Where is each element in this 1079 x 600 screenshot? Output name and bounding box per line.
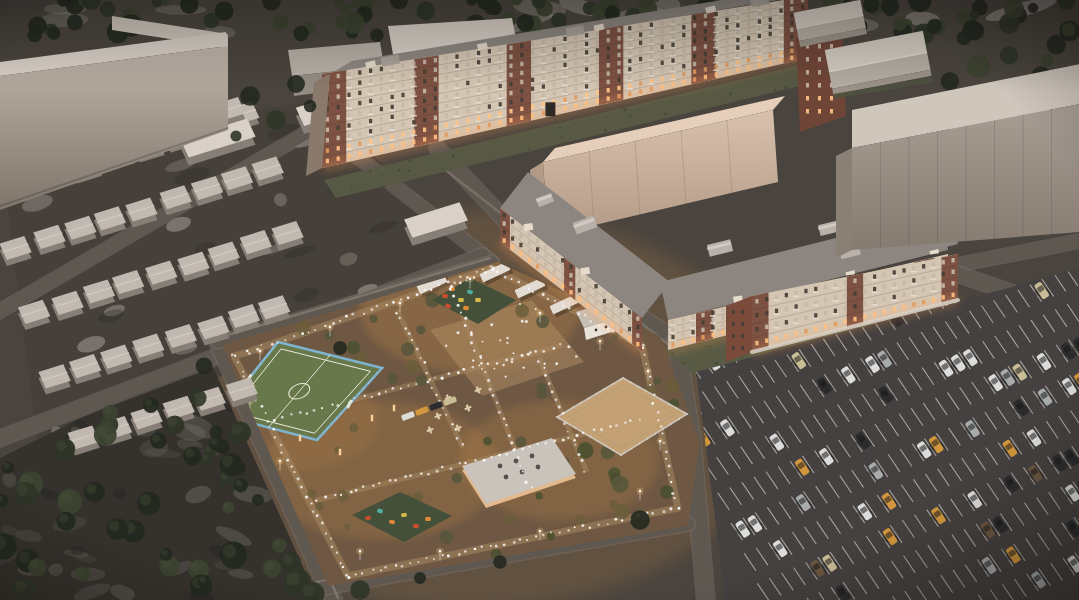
- scene-svg: [0, 0, 1079, 600]
- vignette-overlay: [0, 0, 1079, 600]
- aerial-render-viewport: [0, 0, 1079, 600]
